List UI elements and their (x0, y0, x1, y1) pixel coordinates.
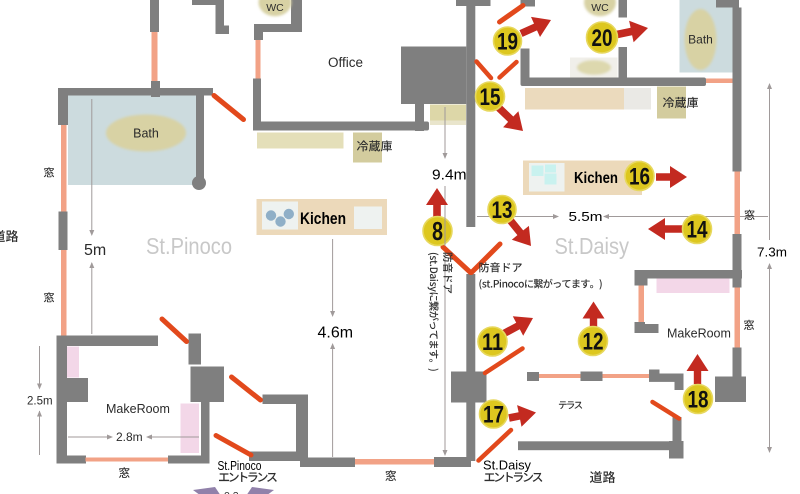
svg-text:16: 16 (629, 163, 650, 190)
svg-text:14: 14 (687, 216, 709, 243)
svg-text:19: 19 (497, 28, 518, 55)
svg-text:MakeRoom: MakeRoom (106, 402, 170, 416)
svg-text:8: 8 (432, 216, 443, 246)
svg-text:Kichen: Kichen (300, 209, 346, 228)
svg-text:20: 20 (592, 25, 613, 52)
svg-text:4.6m: 4.6m (318, 325, 354, 342)
svg-text:2.5m: 2.5m (27, 396, 53, 408)
svg-text:0.2: 0.2 (224, 490, 239, 494)
svg-text:MakeRoom: MakeRoom (667, 327, 731, 341)
svg-text:Kichen: Kichen (574, 170, 618, 187)
svg-text:17: 17 (483, 401, 504, 428)
svg-text:St.Pinoco: St.Pinoco (218, 459, 262, 473)
svg-text:St.Pinoco: St.Pinoco (146, 233, 232, 259)
svg-text:12: 12 (583, 328, 604, 355)
svg-text:13: 13 (492, 197, 513, 224)
svg-text:WC: WC (266, 2, 284, 14)
svg-text:5.5m: 5.5m (569, 209, 603, 224)
svg-text:Bath: Bath (133, 127, 159, 141)
svg-text:9.4m: 9.4m (432, 167, 467, 184)
svg-text:Office: Office (328, 55, 363, 70)
svg-text:Bath: Bath (688, 33, 713, 47)
svg-text:WC: WC (591, 2, 609, 14)
svg-text:5m: 5m (84, 242, 106, 259)
svg-text:St.Daisy: St.Daisy (555, 233, 630, 259)
svg-text:7.3m: 7.3m (757, 245, 787, 260)
svg-text:St.Daisy: St.Daisy (483, 459, 532, 473)
svg-text:15: 15 (480, 84, 501, 111)
svg-text:11: 11 (482, 329, 503, 356)
svg-text:18: 18 (688, 386, 709, 413)
svg-text:2.8m: 2.8m (116, 430, 143, 444)
